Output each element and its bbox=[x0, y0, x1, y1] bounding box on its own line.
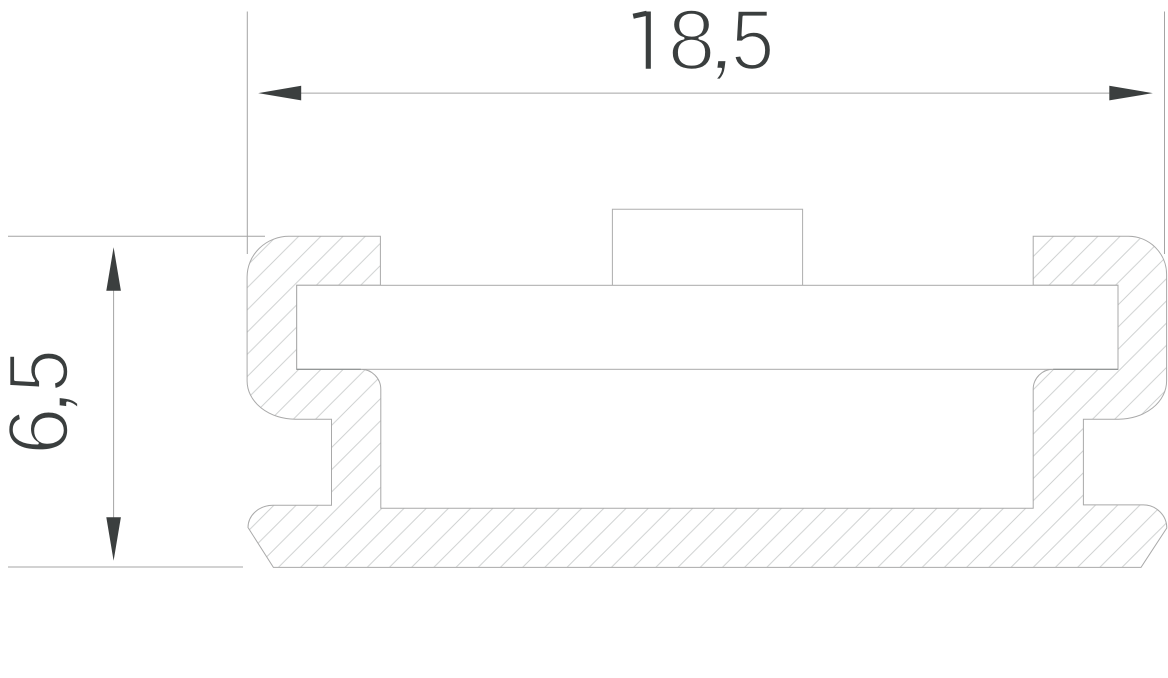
svg-text:5: 5 bbox=[731, 0, 774, 88]
svg-text:5: 5 bbox=[0, 349, 87, 392]
